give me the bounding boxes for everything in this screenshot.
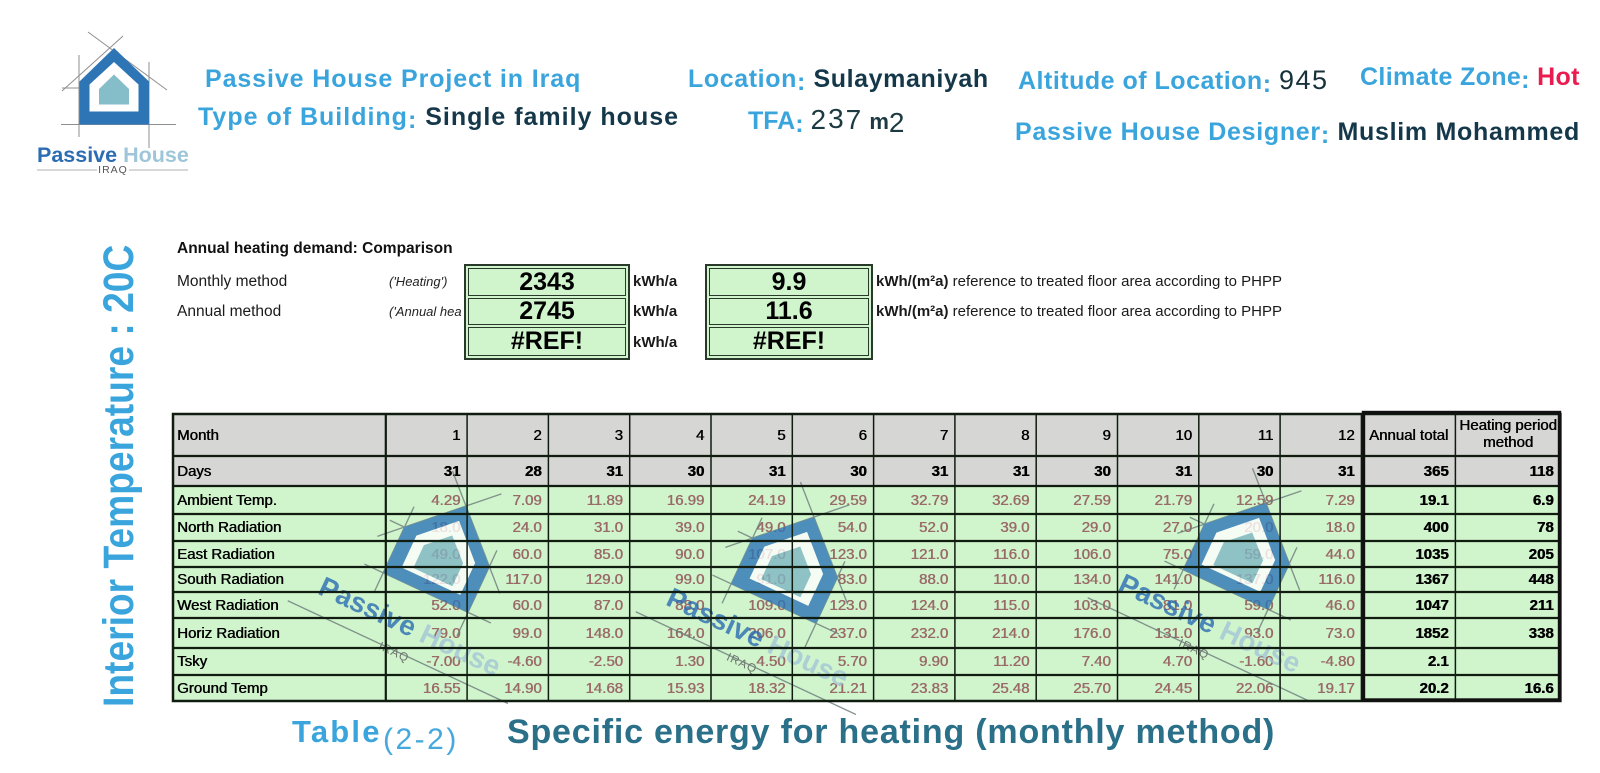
svg-text:IRAQ: IRAQ	[98, 164, 128, 176]
